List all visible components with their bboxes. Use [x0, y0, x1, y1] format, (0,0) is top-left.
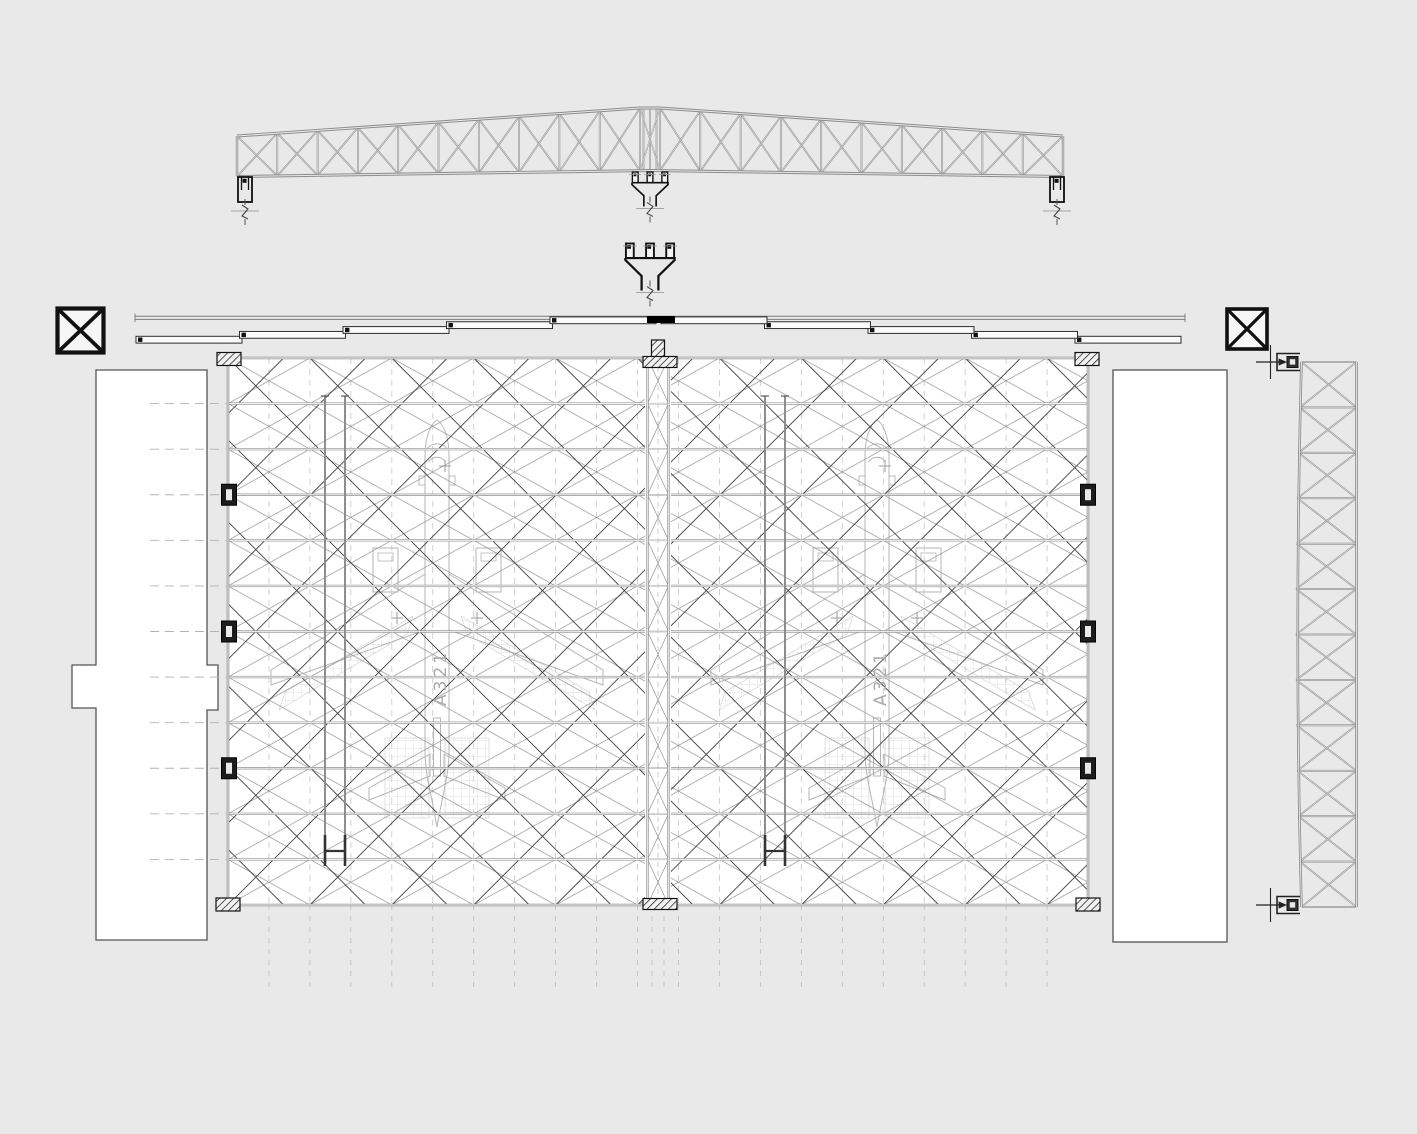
door-edge-truss-elevation	[1256, 345, 1357, 922]
girder-support-columns	[231, 172, 1071, 225]
gate-column-detail	[623, 244, 677, 307]
section-marker-right	[1227, 309, 1267, 349]
hangar-structural-drawing: A321 A321	[0, 0, 1417, 1134]
hangar-door-track	[135, 314, 1185, 344]
section-marker-left	[58, 309, 104, 353]
annex-building-right	[1113, 370, 1227, 942]
aircraft-label-left: A321	[431, 650, 451, 706]
annex-building-left	[72, 370, 226, 940]
roof-girder-elevation	[237, 108, 1063, 177]
aircraft-label-right: A321	[871, 650, 891, 706]
drawing-sheet: A321 A321	[0, 0, 1417, 1134]
